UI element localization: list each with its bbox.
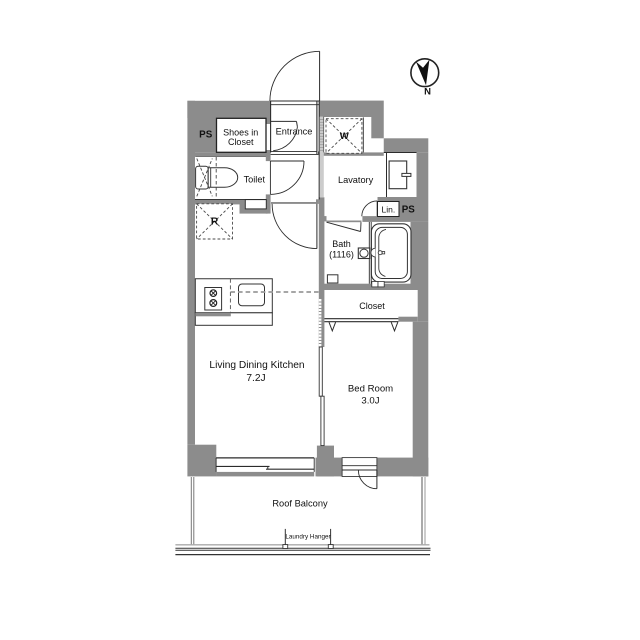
svg-text:PS: PS <box>402 205 416 216</box>
svg-text:Closet: Closet <box>359 301 385 311</box>
svg-text:N: N <box>424 86 431 97</box>
svg-text:Bed Room: Bed Room <box>348 384 393 395</box>
svg-text:Entrance: Entrance <box>276 127 313 137</box>
svg-text:Laundry Hanger: Laundry Hanger <box>285 533 330 540</box>
svg-text:(1116): (1116) <box>329 249 354 259</box>
svg-text:Closet: Closet <box>228 137 254 147</box>
svg-text:Shoes in: Shoes in <box>223 127 258 137</box>
svg-text:3.0J: 3.0J <box>361 396 379 407</box>
svg-text:Toilet: Toilet <box>244 174 266 184</box>
svg-text:Lin.: Lin. <box>382 205 396 215</box>
svg-text:Bath: Bath <box>332 239 351 249</box>
svg-text:R: R <box>211 217 219 228</box>
svg-text:PS: PS <box>199 129 213 140</box>
svg-text:W: W <box>340 131 350 142</box>
svg-text:7.2J: 7.2J <box>246 373 265 384</box>
svg-text:Lavatory: Lavatory <box>338 175 374 185</box>
svg-text:Roof Balcony: Roof Balcony <box>272 498 328 508</box>
svg-text:Living Dining Kitchen: Living Dining Kitchen <box>209 360 304 371</box>
